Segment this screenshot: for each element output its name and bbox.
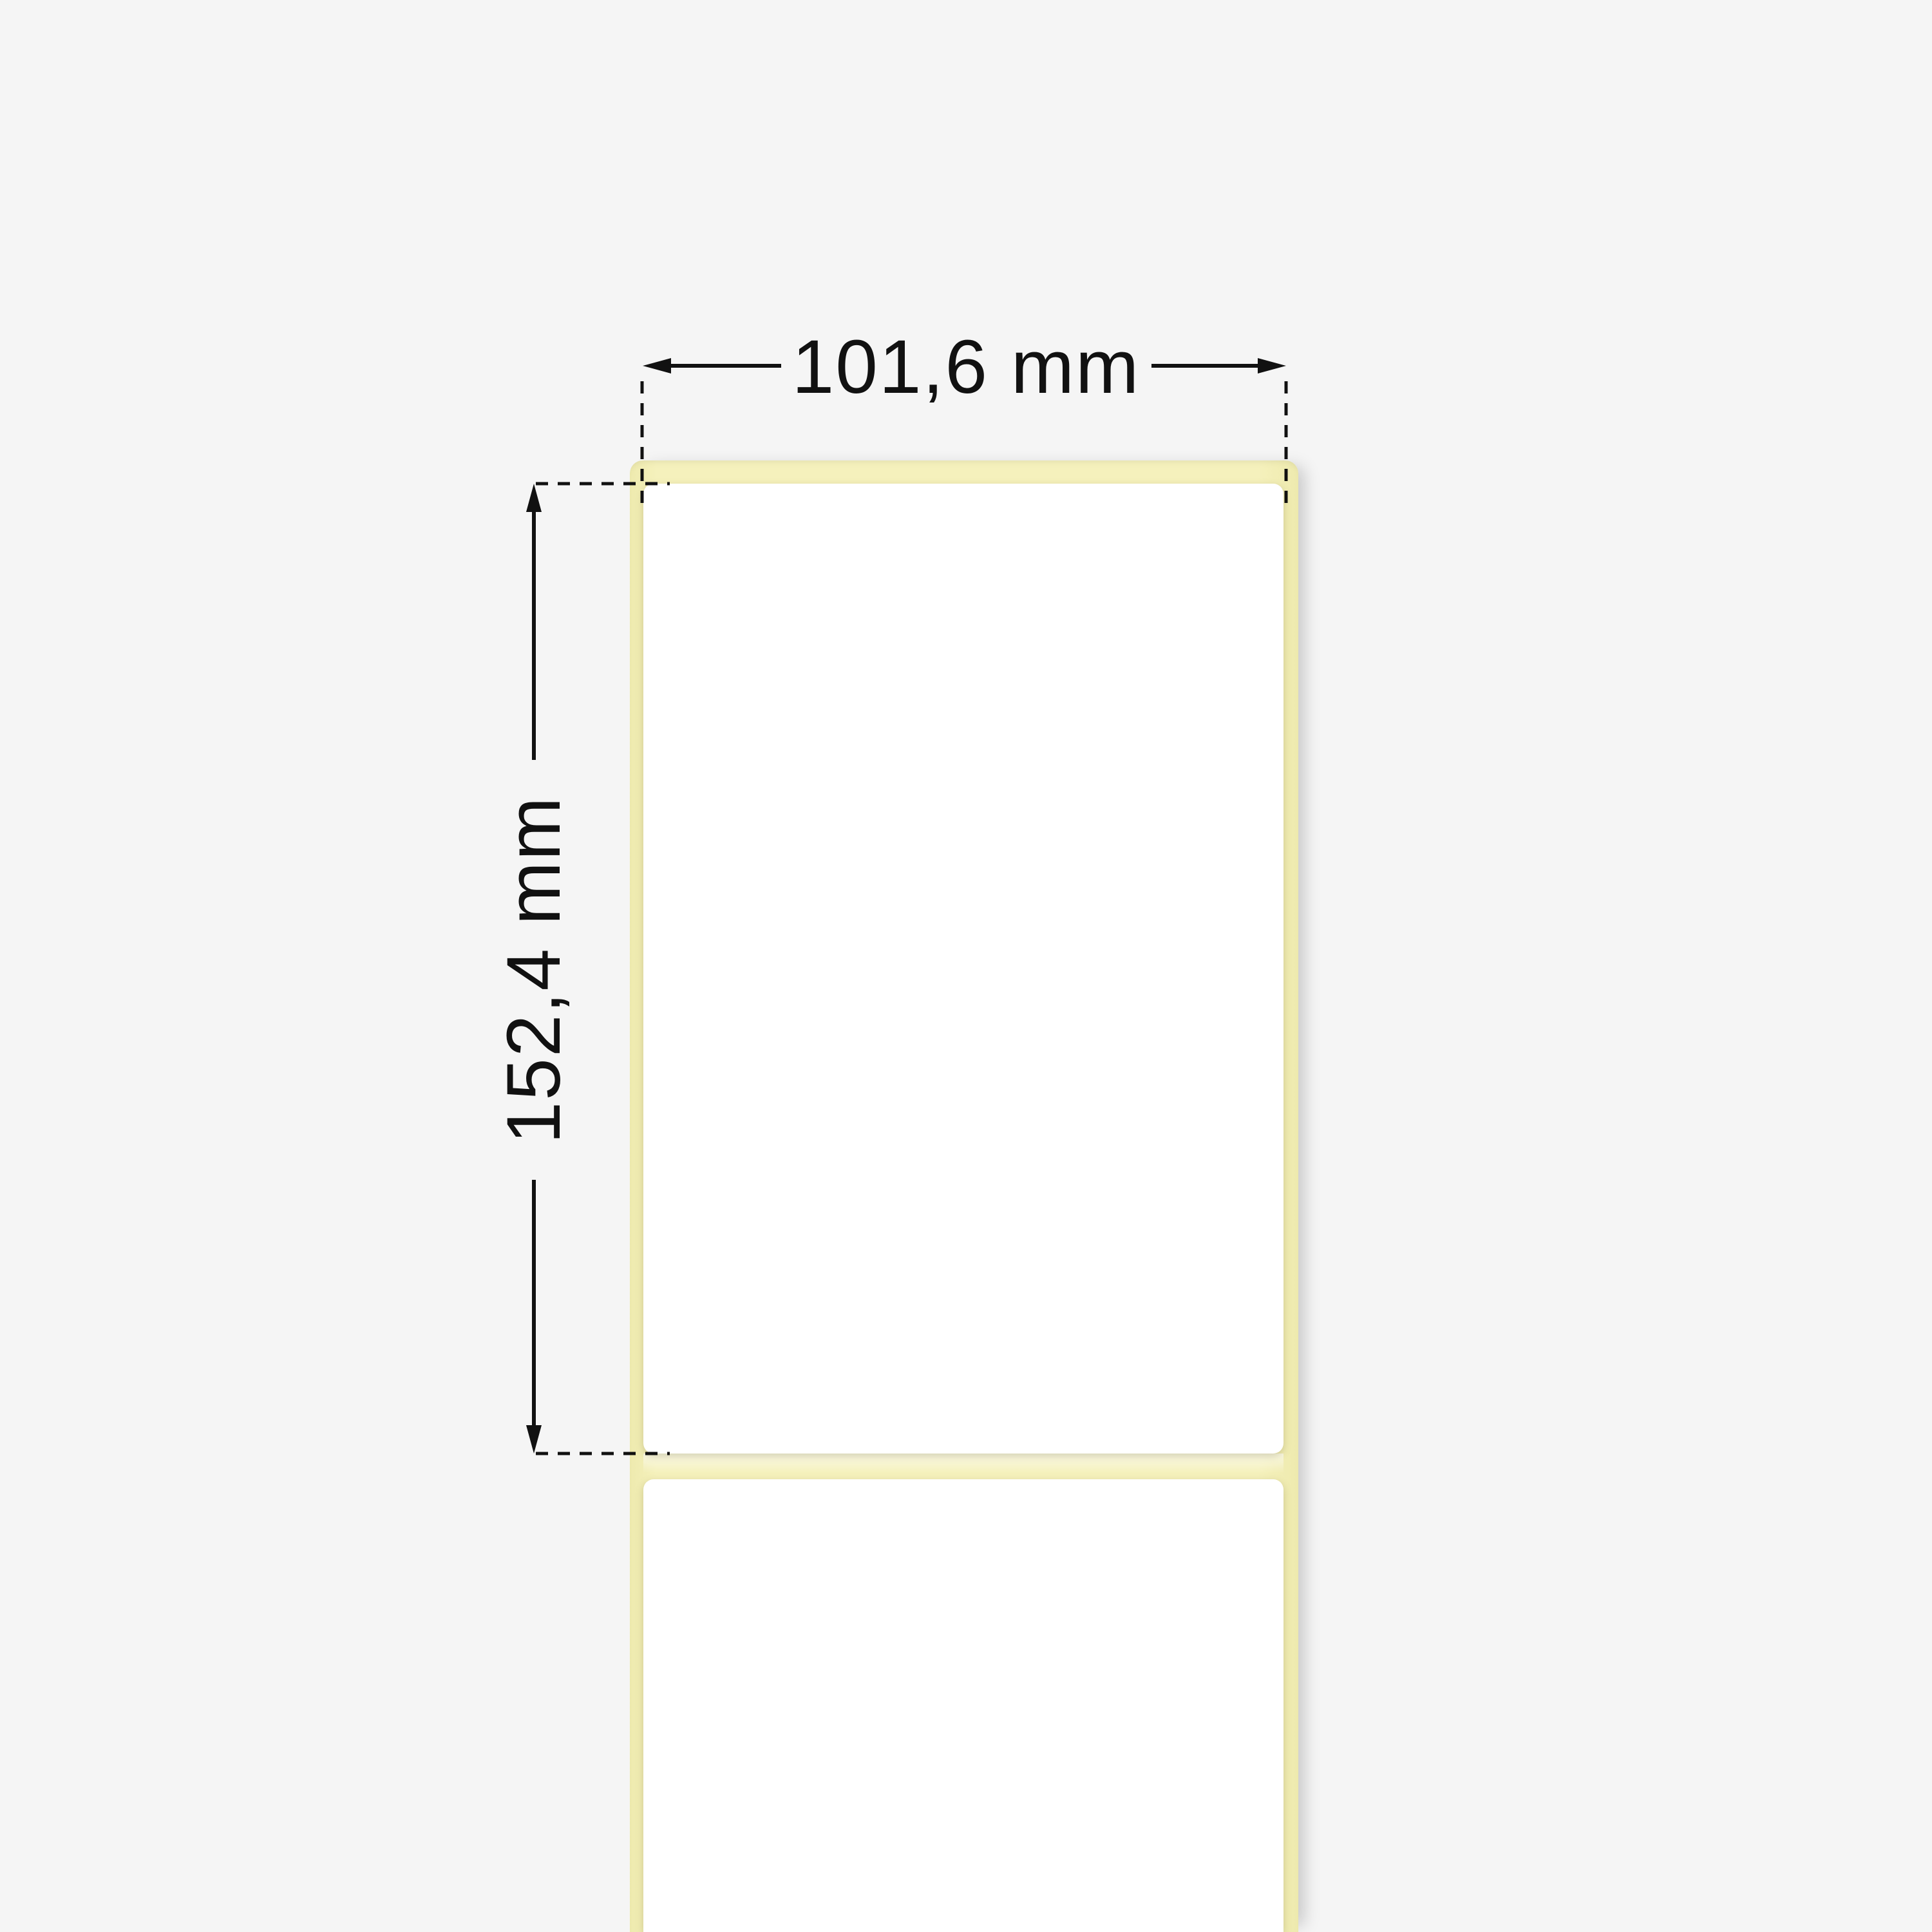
- arrow-right-icon: [1258, 358, 1286, 374]
- height-dimension-label: 152,4 mm: [491, 796, 576, 1144]
- arrow-up-icon: [526, 484, 542, 512]
- height-dimension: 152,4 mm: [491, 484, 670, 1454]
- label-dimension-diagram: 101,6 mm 152,4 mm: [0, 0, 1932, 1932]
- arrow-left-icon: [643, 358, 671, 374]
- width-dimension: 101,6 mm: [642, 325, 1286, 507]
- arrow-down-icon: [526, 1425, 542, 1454]
- dimension-annotations: 101,6 mm 152,4 mm: [0, 0, 1932, 1932]
- width-dimension-label: 101,6 mm: [792, 325, 1141, 410]
